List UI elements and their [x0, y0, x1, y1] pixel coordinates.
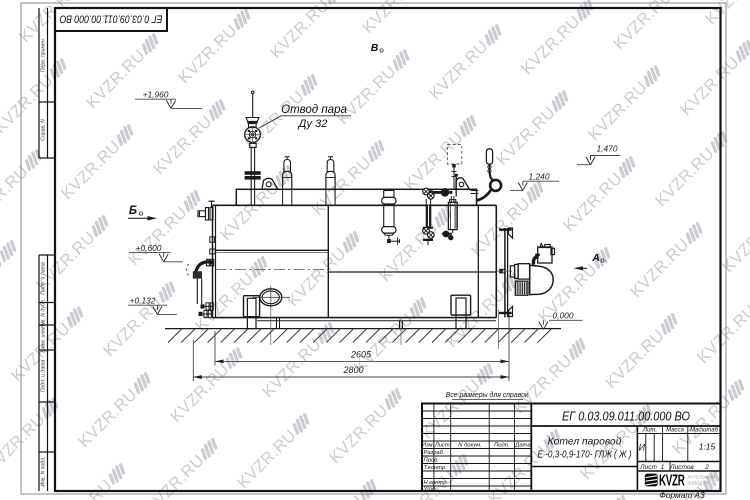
svg-text:1:15: 1:15: [699, 442, 716, 452]
svg-text:Лист: Лист: [639, 464, 657, 471]
svg-text:Инв. N подл.: Инв. N подл.: [41, 456, 47, 486]
svg-text:Пров.: Пров.: [424, 458, 439, 464]
svg-text:2605: 2605: [350, 349, 372, 359]
svg-text:Котел паровой: Котел паровой: [548, 437, 622, 448]
svg-text:Т.контр.: Т.контр.: [424, 465, 447, 471]
svg-text:1,470: 1,470: [597, 144, 618, 154]
svg-text:Подп.: Подп.: [494, 442, 509, 448]
svg-text:Формат А3: Формат А3: [659, 490, 705, 500]
svg-text:Разраб.: Разраб.: [424, 450, 445, 456]
svg-text:Е -0,3-0,9-170- ГЛЖ ( Ж ): Е -0,3-0,9-170- ГЛЖ ( Ж ): [538, 450, 632, 461]
svg-text:Подп. и дата: Подп. и дата: [41, 360, 47, 393]
svg-text:0,000: 0,000: [553, 310, 574, 320]
svg-text:ЕГ 0.03.09.011.00.000 ВО: ЕГ 0.03.09.011.00.000 ВО: [562, 409, 690, 424]
svg-text:Н.контр.: Н.контр.: [424, 480, 449, 486]
svg-text:Справ. N: Справ. N: [41, 119, 47, 141]
svg-text:КОТЕЛЬНЫЙ: КОТЕЛЬНЫЙ: [688, 475, 716, 480]
svg-text:+1,960: +1,960: [143, 89, 169, 99]
svg-text:Перв. примен.: Перв. примен.: [41, 38, 47, 72]
svg-text:Утв.: Утв.: [423, 486, 437, 492]
svg-text:Все размеры для справок: Все размеры для справок: [446, 391, 529, 399]
svg-text:Взам. инв. N: Взам. инв. N: [41, 322, 47, 352]
svg-text:Б: Б: [129, 205, 137, 217]
svg-text:В: В: [371, 42, 379, 54]
svg-text:2800: 2800: [342, 365, 363, 375]
svg-text:KVZR: KVZR: [659, 473, 685, 490]
svg-text:Листов: Листов: [669, 464, 694, 471]
svg-text:ЗАВОД.РУ: ЗАВОД.РУ: [688, 481, 711, 486]
svg-text:+0,600: +0,600: [136, 243, 162, 253]
svg-text:Ду 32: Ду 32: [297, 118, 328, 130]
svg-text:Дата: Дата: [514, 442, 531, 448]
svg-text:Масштаб: Масштаб: [690, 428, 719, 434]
svg-text:А: А: [591, 252, 600, 264]
svg-text:Изм.: Изм.: [422, 442, 434, 448]
svg-text:N докум.: N докум.: [458, 442, 481, 448]
svg-text:Лит.: Лит.: [642, 428, 657, 434]
svg-text:+0,132: +0,132: [130, 295, 156, 305]
svg-text:2: 2: [704, 464, 709, 471]
svg-text:1: 1: [661, 464, 665, 471]
svg-text:ЕГ 0.03.09.011.00.000 ВО: ЕГ 0.03.09.011.00.000 ВО: [59, 13, 162, 25]
svg-text:Лист: Лист: [434, 442, 450, 448]
svg-text:Масса: Масса: [666, 428, 684, 434]
svg-text:Отвод пара: Отвод пара: [281, 104, 347, 116]
svg-text:Подп. и дата: Подп. и дата: [41, 262, 47, 295]
svg-text:И: И: [639, 443, 646, 453]
svg-text:1,240: 1,240: [529, 171, 550, 181]
